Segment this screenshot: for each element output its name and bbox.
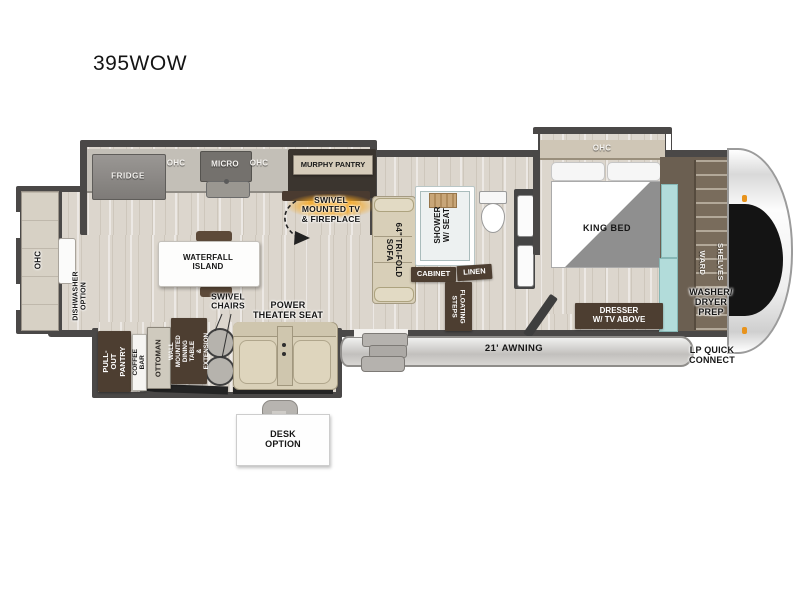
awning-label: 21' AWNING bbox=[485, 344, 543, 354]
ward-label: WARD bbox=[698, 251, 706, 276]
marker-light-icon bbox=[742, 327, 747, 334]
pillow bbox=[607, 162, 661, 181]
vanity-sink bbox=[517, 245, 534, 287]
rear-ohc-label: OHC bbox=[35, 251, 44, 269]
ward-mirror bbox=[661, 184, 678, 258]
swivel-chairs-label: SWIVEL CHAIRS bbox=[211, 293, 245, 312]
theater-cupholder bbox=[282, 352, 286, 356]
power-theater-seat-label: POWER THEATER SEAT bbox=[253, 301, 323, 321]
waterfall-island-label: WATERFALL ISLAND bbox=[183, 254, 233, 272]
dishwasher-option-label: DISHWASHER OPTION bbox=[72, 271, 87, 320]
murphy-pantry-label: MURPHY PANTRY bbox=[293, 155, 373, 175]
shelves-label: SHELVES bbox=[716, 243, 724, 281]
theater-cupholder bbox=[282, 343, 286, 347]
hull-corner-mask bbox=[38, 144, 80, 186]
fridge-label: FRIDGE bbox=[111, 173, 145, 182]
kitchen-faucet bbox=[224, 179, 229, 184]
ohc-kitchen-left-label: OHC bbox=[167, 160, 185, 169]
theater-console bbox=[277, 326, 293, 386]
theater-cushion bbox=[293, 340, 331, 384]
page-title: 395WOW bbox=[93, 52, 187, 76]
sofa-armrest bbox=[374, 198, 414, 212]
entry-steps bbox=[361, 356, 405, 372]
pillow bbox=[551, 162, 605, 181]
ohc-kitchen-right-label: OHC bbox=[250, 160, 268, 169]
marker-light-icon bbox=[742, 195, 747, 202]
floating-steps: FLOATING STEPS bbox=[445, 282, 472, 331]
bedroom-window bbox=[533, 134, 538, 150]
dresser-label: DRESSER W/ TV ABOVE bbox=[575, 303, 663, 329]
shower-label: SHOWER W/ SEAT bbox=[434, 206, 452, 243]
king-bed-label: KING BED bbox=[583, 224, 631, 234]
desk-option-box: DESK OPTION bbox=[236, 414, 330, 466]
sofa-label: 64" TRI-FOLD SOFA bbox=[384, 223, 402, 278]
lp-quick-connect-label: LP QUICK CONNECT bbox=[689, 346, 735, 366]
rear-wall-window bbox=[16, 212, 20, 238]
sofa-armrest bbox=[374, 287, 414, 302]
cabinet-label: CABINET bbox=[411, 267, 456, 282]
floorplan-canvas: 395WOW MURPHY PANTRY bbox=[0, 0, 800, 600]
front-cap bbox=[727, 148, 793, 354]
bedroom-window bbox=[666, 134, 671, 150]
front-windshield bbox=[727, 204, 783, 316]
theater-cushion bbox=[239, 340, 277, 384]
swivel-tv-label: SWIVEL MOUNTED TV & FIREPLACE bbox=[302, 196, 361, 224]
coffee-bar: COFFEE BAR bbox=[132, 334, 147, 391]
kitchen-sink bbox=[206, 181, 250, 198]
linen-label: LINEN bbox=[457, 264, 493, 281]
pull-out-pantry: PULL-OUT PANTRY bbox=[98, 331, 131, 392]
bedroom-ohc-label: OHC bbox=[593, 145, 611, 154]
micro-label: MICRO bbox=[211, 161, 239, 170]
rear-wall-window bbox=[16, 284, 20, 310]
vanity-sink bbox=[517, 195, 534, 237]
washer-dryer-prep-label: WASHER/ DRYER PREP bbox=[689, 288, 732, 318]
dining-table: WALL MOUNTED DINING TABLE & EXTENSION bbox=[171, 318, 207, 384]
desk-option-label: DESK OPTION bbox=[265, 430, 301, 450]
